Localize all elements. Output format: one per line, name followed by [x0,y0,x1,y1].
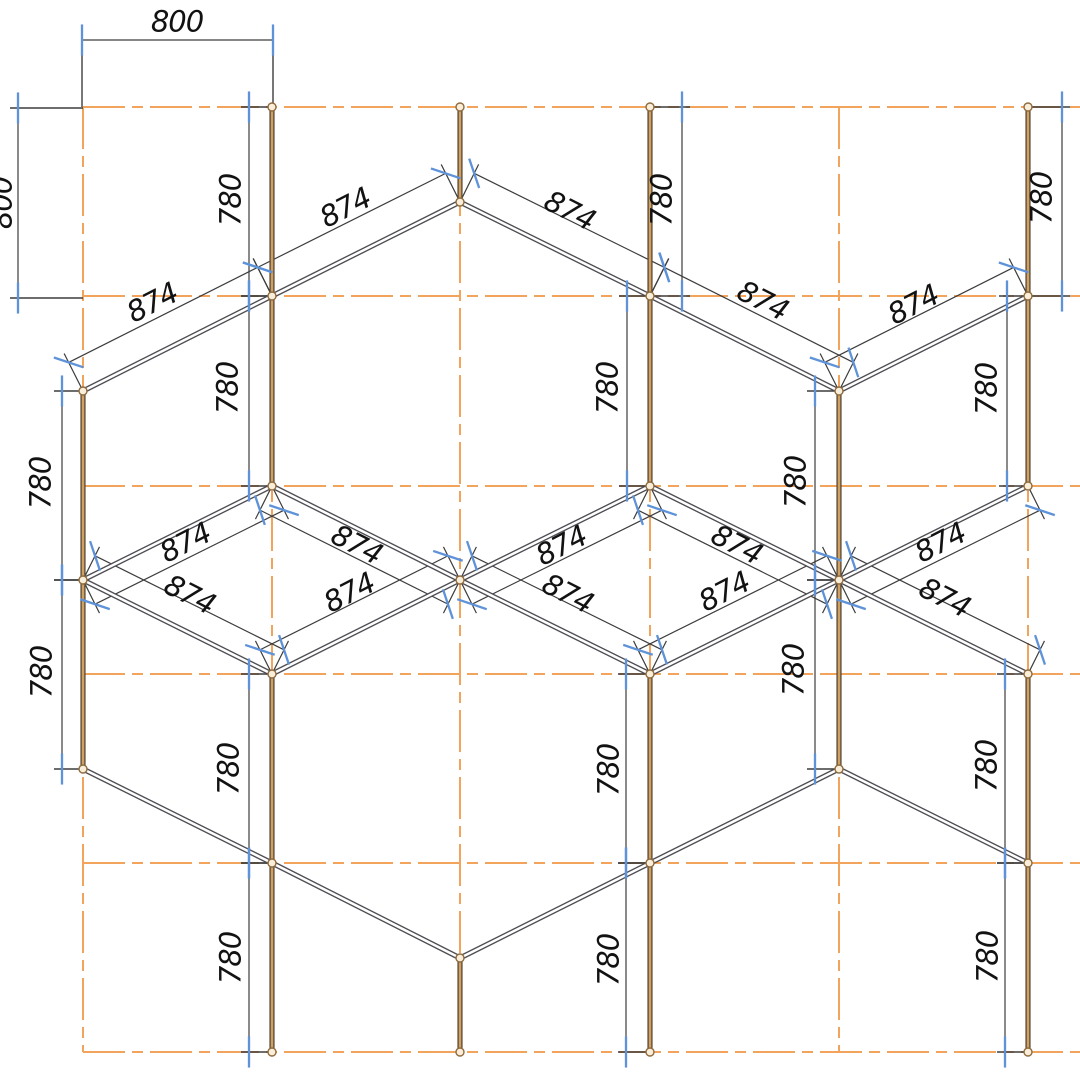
dimension-value-label: 780 [590,362,624,414]
dimension-value-label: 874 [314,180,376,234]
dimension-value-label: 874 [121,275,183,329]
joint-node [646,1048,654,1056]
joint-node [835,765,843,773]
dimension-value-label: 874 [693,564,755,618]
joint-node [268,482,276,490]
joint-node [268,292,276,300]
dimension-value-label: 780 [1024,172,1058,224]
joint-node [646,670,654,678]
dimension-value-label: 780 [213,932,247,984]
joint-node [1024,670,1032,678]
joint-node [1024,292,1032,300]
joint-node [79,765,87,773]
dimension-value-label: 780 [211,743,245,795]
joint-node [456,198,464,206]
joint-node [646,482,654,490]
joint-node [268,1048,276,1056]
dimension-value-label: 874 [539,183,601,237]
diagonal-member [650,769,839,863]
dimension-value-label: 780 [213,174,247,226]
joint-node [835,387,843,395]
joint-node [1024,482,1032,490]
joint-node [1024,859,1032,867]
dimension-value-label: 874 [154,515,216,569]
joint-node [835,576,843,584]
dimension-value-label: 874 [909,515,971,569]
joint-node [79,387,87,395]
joint-node [1024,1048,1032,1056]
diagonal-member [272,202,460,296]
dimension-value-label: 874 [732,273,794,327]
dimension-value-label: 874 [882,277,944,331]
dimension-value-label: 780 [969,363,1003,415]
dimension-value-label: 780 [591,934,625,986]
dimension-value-label: 874 [318,565,380,619]
diagonal-member [272,863,460,958]
dimension-value-label: 800 [0,177,18,229]
dimension-value-label: 780 [778,456,812,508]
dimension-value-label: 874 [706,517,768,571]
cad-drawing-canvas: 8008007807807807807807807807807807807807… [0,0,1080,1080]
joint-node [456,1048,464,1056]
dimension-value-label: 800 [151,4,203,38]
dimension-value-label: 874 [326,517,388,571]
joint-node [646,292,654,300]
joint-node [268,103,276,111]
dimension-value-label: 780 [24,646,58,698]
diagonal-member [650,296,839,391]
joint-node [456,103,464,111]
dimension-value-label: 874 [914,570,976,624]
joint-node [646,103,654,111]
dimension-value-label: 780 [210,362,244,414]
dimension-value-label: 780 [969,740,1003,792]
joint-node [79,576,87,584]
joint-node [268,670,276,678]
joint-node [456,954,464,962]
dimension-value-label: 874 [537,566,599,620]
dimension-value-label: 780 [644,174,678,226]
joint-node [646,859,654,867]
joint-node [268,859,276,867]
dimension-value-label: 780 [970,931,1004,983]
dimension-value-label: 780 [776,644,810,696]
cad-drawing-stage: 8008007807807807807807807807807807807807… [0,0,1080,1080]
dimension-value-label: 780 [23,457,57,509]
joint-node [456,576,464,584]
joint-node [1024,103,1032,111]
dimension-value-label: 780 [591,744,625,796]
dimension-value-label: 874 [530,518,592,572]
dimension-labels-layer: 8008007807807807807807807807807807807807… [0,4,1058,986]
